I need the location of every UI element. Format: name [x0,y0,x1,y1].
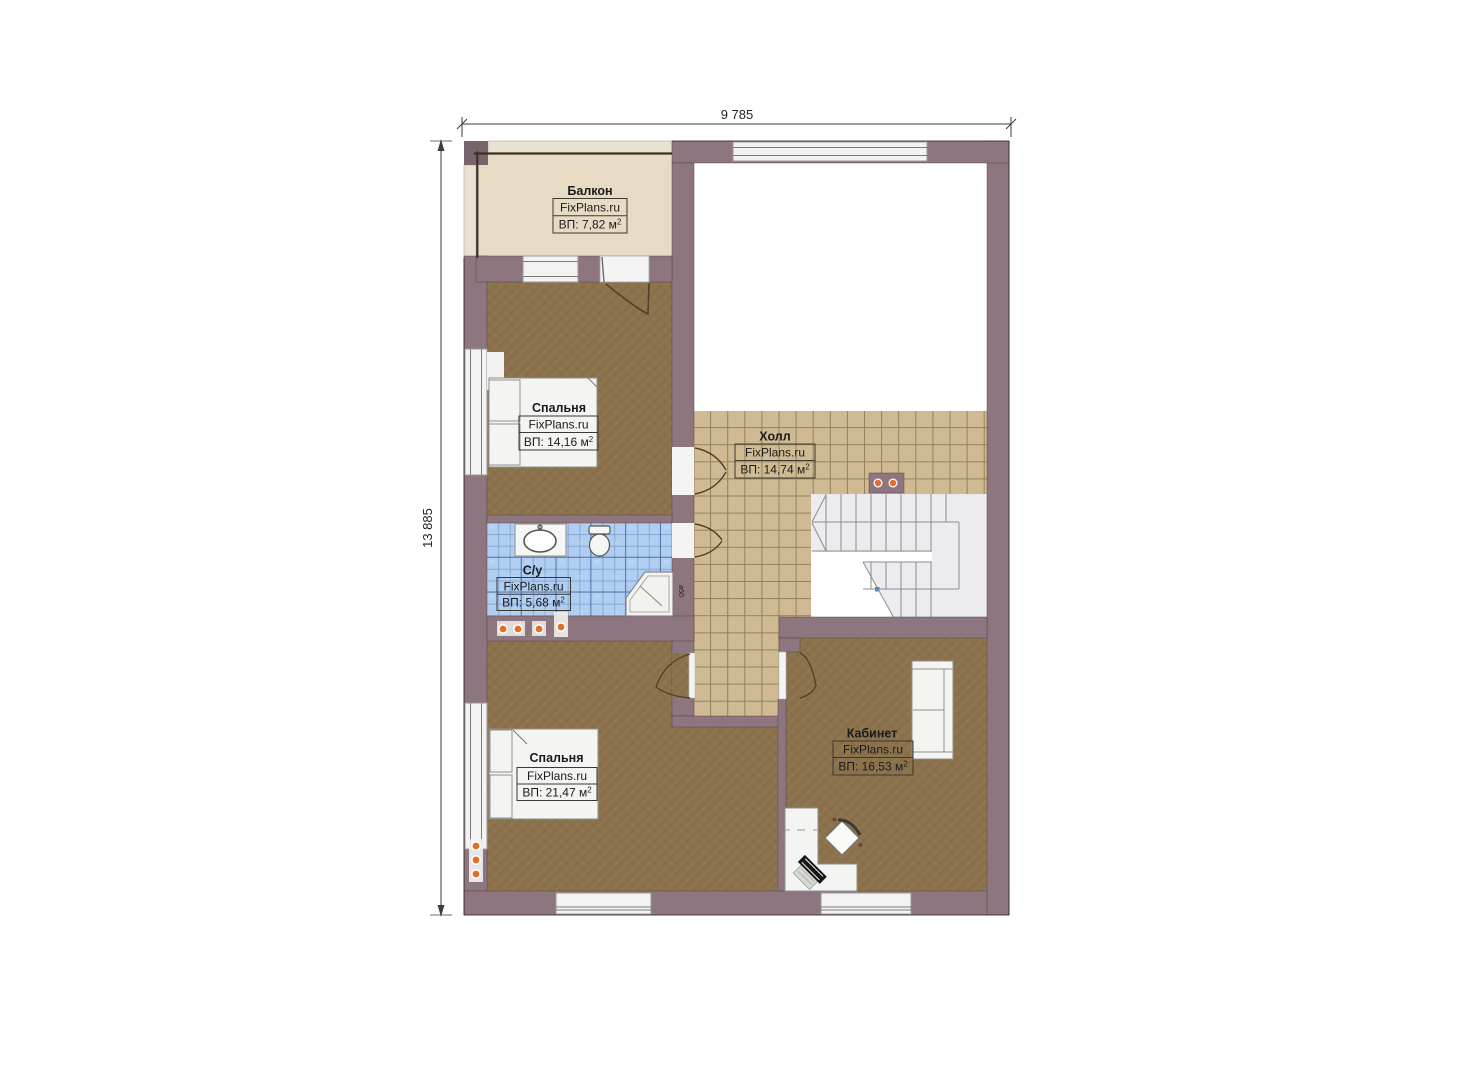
svg-text:ВП: 16,53 м2: ВП: 16,53 м2 [838,760,908,774]
svg-text:FixPlans.ru: FixPlans.ru [560,201,620,215]
svg-text:ВП: 7,82 м2: ВП: 7,82 м2 [559,218,622,232]
svg-text:Спальня: Спальня [530,751,584,765]
svg-text:13 885: 13 885 [420,508,435,548]
svg-text:ВП: 5,68 м2: ВП: 5,68 м2 [502,596,565,610]
svg-text:ВП: 14,74 м2: ВП: 14,74 м2 [740,463,810,477]
svg-text:Балкон: Балкон [567,184,612,198]
svg-text:Кабинет: Кабинет [847,727,898,741]
svg-text:Спальня: Спальня [532,401,586,415]
svg-text:9 785: 9 785 [721,107,754,122]
svg-text:FixPlans.ru: FixPlans.ru [843,743,903,757]
svg-text:FixPlans.ru: FixPlans.ru [527,769,587,783]
svg-text:Холл: Холл [759,430,790,444]
svg-text:FixPlans.ru: FixPlans.ru [745,446,805,460]
svg-text:ø50: ø50 [677,585,684,597]
svg-text:ВП: 21,47 м2: ВП: 21,47 м2 [522,786,592,800]
svg-text:С/у: С/у [523,564,543,578]
svg-text:FixPlans.ru: FixPlans.ru [528,418,588,432]
svg-text:FixPlans.ru: FixPlans.ru [503,580,563,594]
svg-text:ВП: 14,16 м2: ВП: 14,16 м2 [524,435,594,449]
